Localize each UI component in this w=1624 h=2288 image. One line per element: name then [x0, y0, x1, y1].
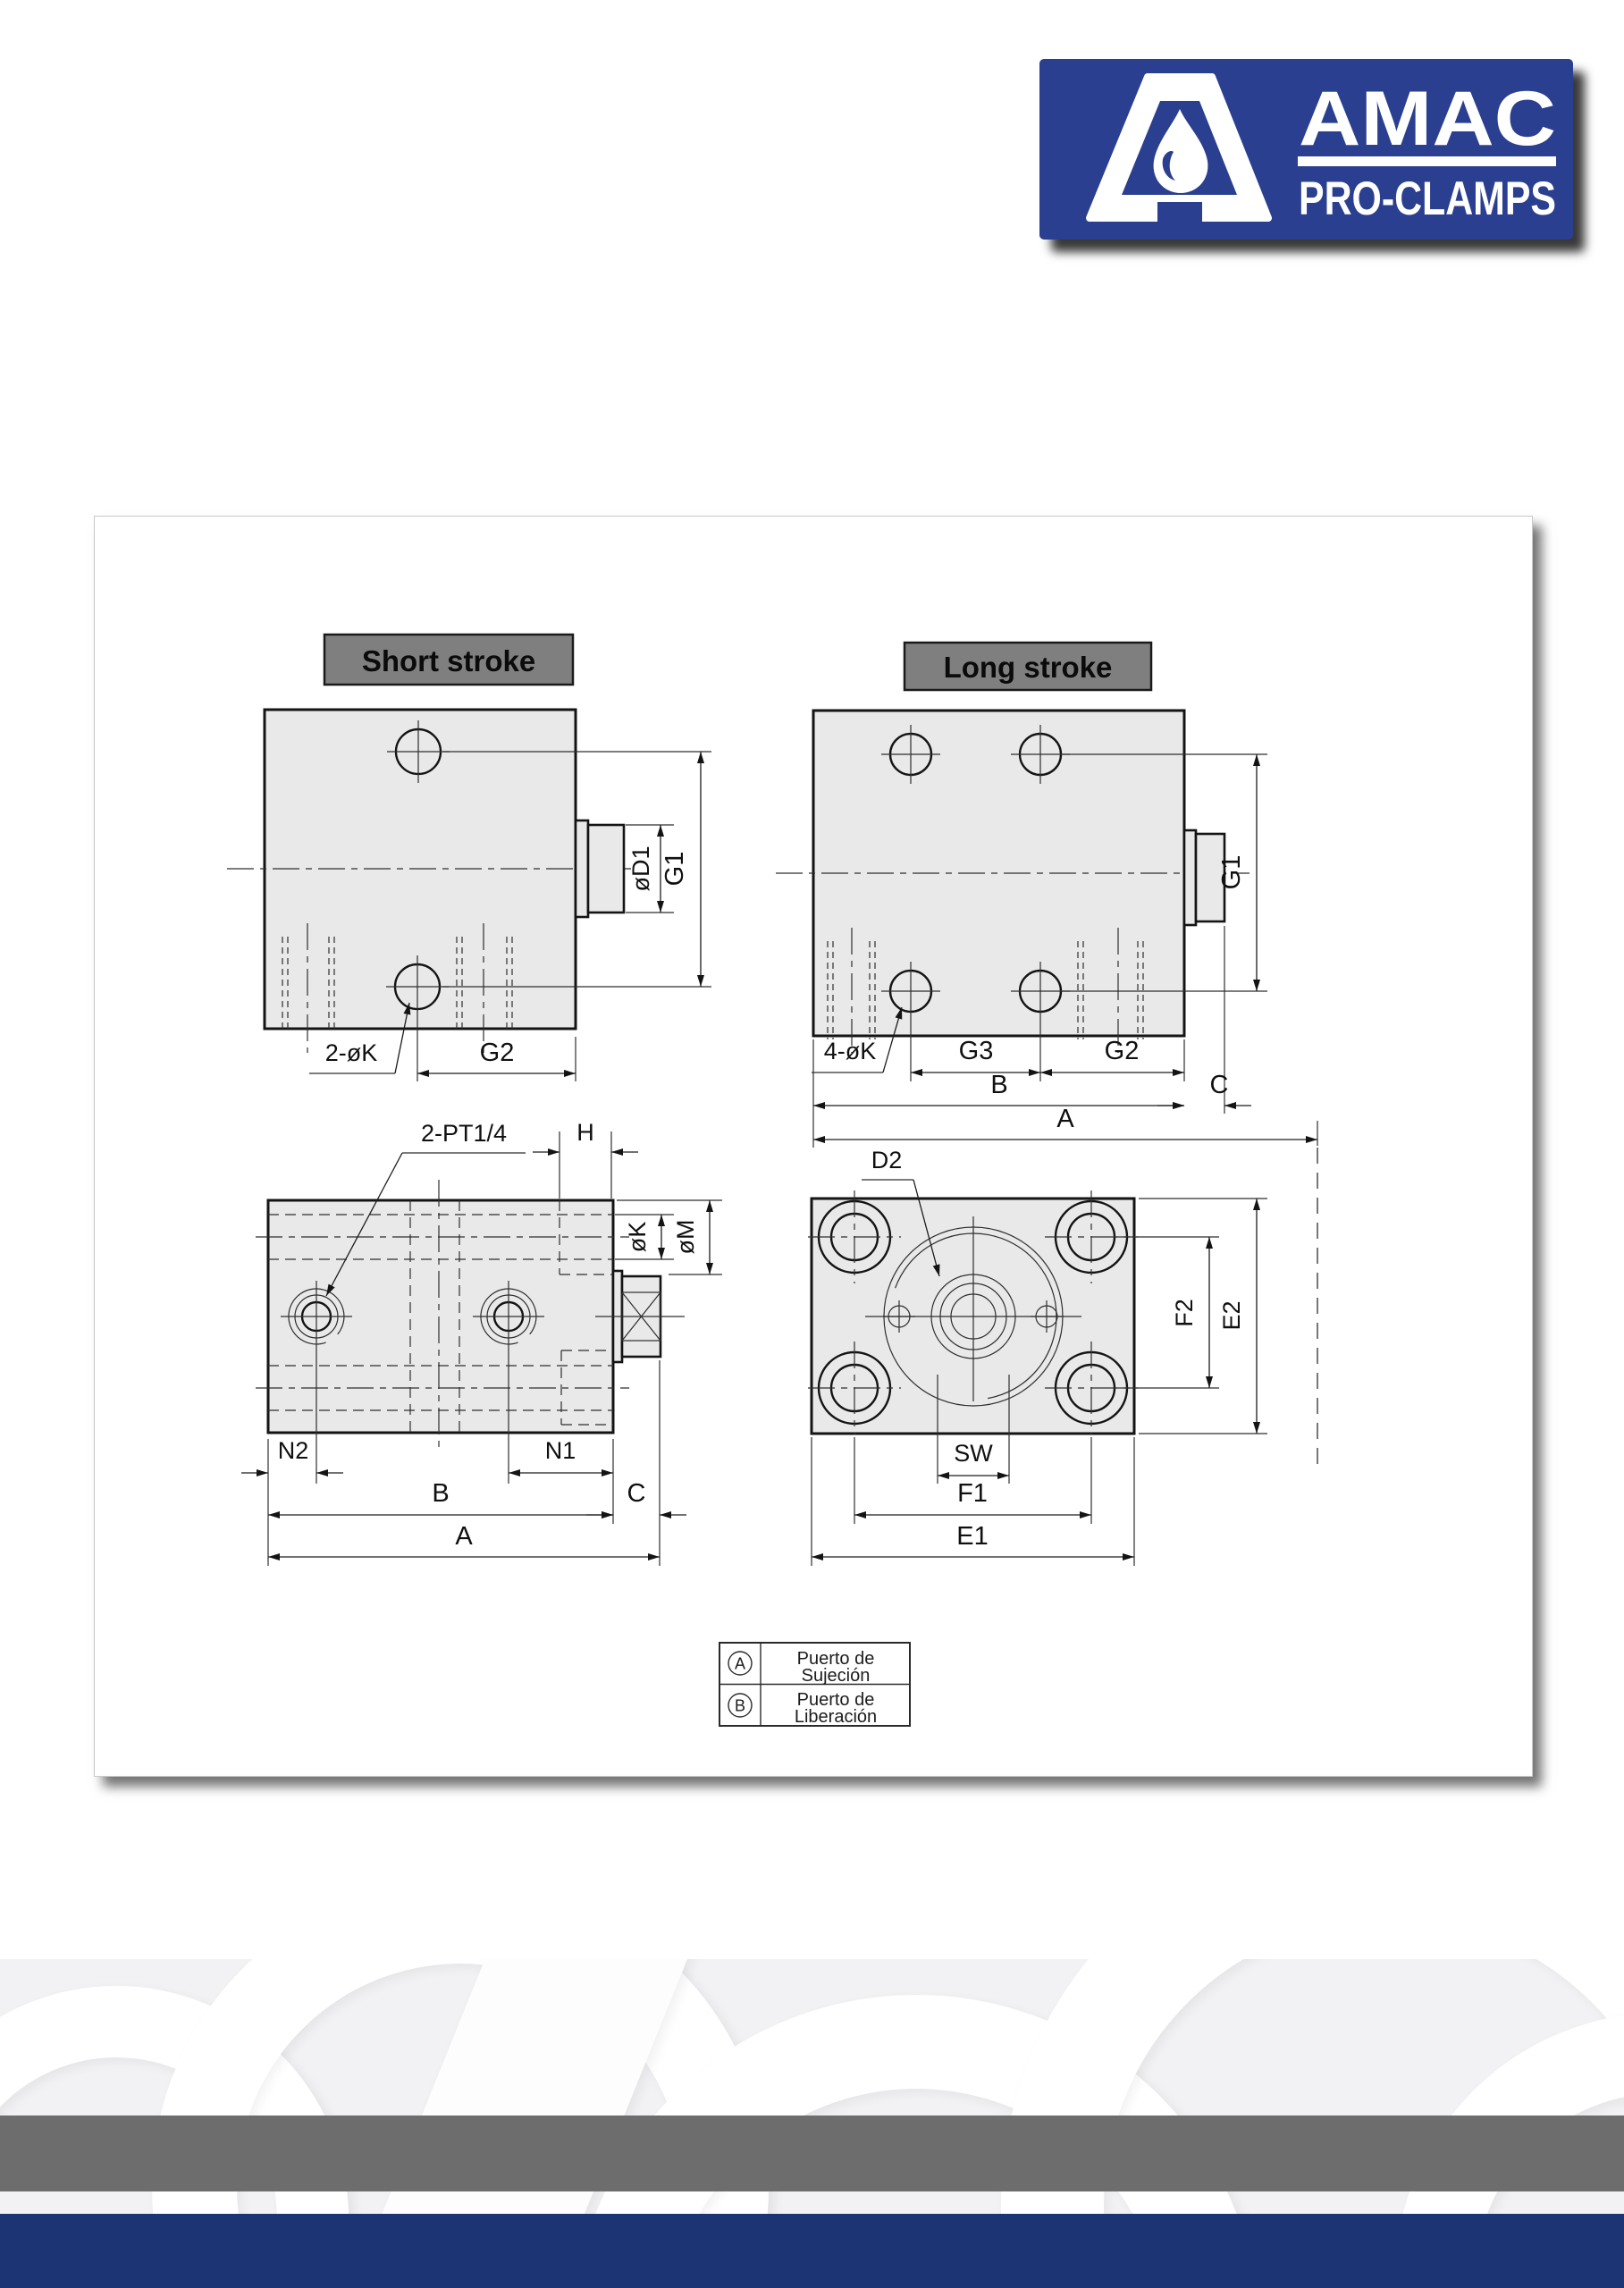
amac-logo-graphic: AMAC PRO-CLAMPS — [1039, 59, 1573, 240]
dim-label-2ok: 2-øK — [325, 1039, 378, 1066]
dim-label-g2: G2 — [480, 1039, 515, 1067]
amac-logo: AMAC PRO-CLAMPS — [1039, 59, 1573, 240]
dim-label-g2: G2 — [1105, 1037, 1140, 1065]
dim-label-4ok: 4-øK — [824, 1038, 877, 1064]
plunger-flange — [1184, 830, 1196, 925]
dim-label-od1: øD1 — [627, 845, 654, 891]
dim-label-n1: N1 — [545, 1437, 576, 1464]
port-a-key: A — [735, 1655, 745, 1673]
dim-label-n2: N2 — [278, 1437, 309, 1464]
amac-a-droplet-icon — [1090, 77, 1268, 222]
dim-label-g1: G1 — [1217, 855, 1246, 890]
technical-drawing-panel: Short stroke — [94, 516, 1533, 1777]
dim-label-h: H — [576, 1119, 594, 1146]
dim-label-a: A — [455, 1522, 473, 1551]
port-b-key: B — [735, 1697, 745, 1715]
dim-label-a: A — [1056, 1105, 1074, 1133]
logo-brand-text: AMAC — [1299, 76, 1556, 162]
plunger — [588, 825, 624, 913]
dim-label-e2: E2 — [1218, 1300, 1245, 1330]
legend-b-line2: Liberación — [795, 1707, 877, 1727]
short-stroke-title: Short stroke — [362, 644, 535, 677]
logo-subbrand-text: PRO-CLAMPS — [1299, 172, 1556, 225]
dim-label-f2: F2 — [1171, 1299, 1198, 1327]
dim-label-om: øM — [672, 1220, 699, 1255]
technical-drawing: Short stroke — [95, 517, 1532, 1776]
catalog-page: AMAC PRO-CLAMPS Short stroke — [0, 0, 1624, 2288]
dim-label-d2: D2 — [871, 1147, 903, 1173]
dim-label-sw: SW — [954, 1440, 993, 1467]
dim-label-c: C — [1210, 1071, 1229, 1099]
dim-label-b: B — [990, 1071, 1007, 1099]
port-legend-table: A Puerto de Sujeción B Puerto de Liberac… — [719, 1643, 910, 1727]
legend-a-line2: Sujeción — [802, 1666, 871, 1686]
dim-label-f1: F1 — [957, 1479, 988, 1508]
dim-label-g3: G3 — [959, 1037, 994, 1065]
dim-label-c: C — [627, 1479, 646, 1508]
plunger-flange — [576, 820, 588, 917]
dim-label-b: B — [432, 1479, 449, 1508]
footer-navy-band — [0, 2214, 1624, 2288]
logo-underline — [1298, 156, 1556, 166]
dim-label-g1: G1 — [661, 852, 689, 887]
side-view: 2-PT1/4 H øK øM N2 — [241, 1119, 722, 1566]
dim-label-port: 2-PT1/4 — [421, 1120, 507, 1147]
footer-gray-band — [0, 2116, 1624, 2191]
end-view: D2 F2 E2 SW F1 E1 — [808, 1147, 1267, 1566]
dim-label-e1: E1 — [956, 1522, 988, 1551]
short-stroke-view: Short stroke — [227, 635, 711, 1081]
long-stroke-title: Long stroke — [944, 651, 1113, 684]
dim-label-ok: øK — [624, 1222, 651, 1253]
